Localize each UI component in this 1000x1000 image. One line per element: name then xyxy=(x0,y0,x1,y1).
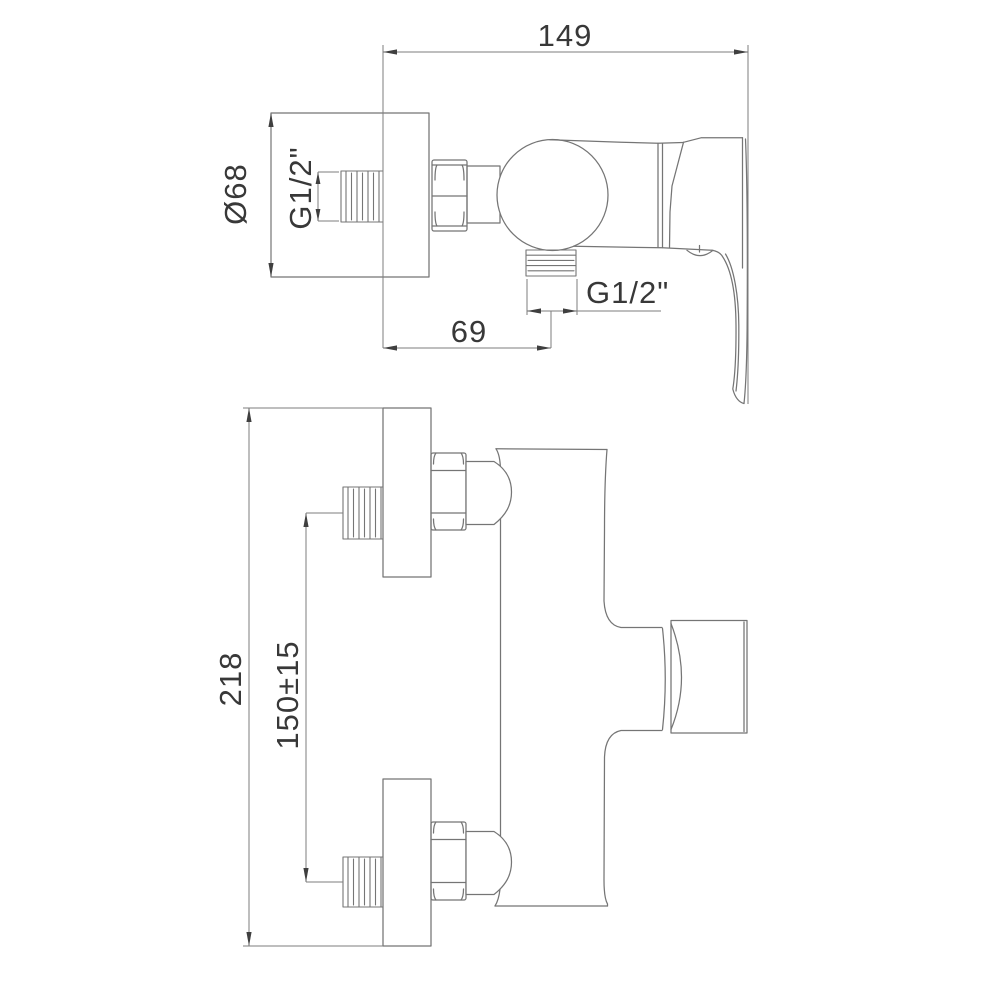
top-connection xyxy=(343,408,512,577)
inlet-thread-bottom xyxy=(343,857,383,907)
dimension-plate-diameter: Ø68 xyxy=(218,113,274,277)
technical-drawing-page: 149 Ø68 G1/2" G1/2" 69 xyxy=(0,0,1000,1000)
body-plan xyxy=(495,449,665,906)
dim-overall-depth-label: 149 xyxy=(538,18,593,53)
inlet-thread-top xyxy=(343,487,383,539)
connector-cylinder-side xyxy=(467,166,500,223)
valve-body-circle xyxy=(497,140,608,251)
dim-connection-spacing-label: 150±15 xyxy=(270,640,305,749)
dimension-connection-spacing: 150±15 xyxy=(270,513,343,882)
side-view: 149 Ø68 G1/2" G1/2" 69 xyxy=(218,18,748,404)
dimension-wall-to-outlet: 69 xyxy=(383,311,551,351)
dim-overall-width-label: 218 xyxy=(213,652,248,707)
outlet-thread xyxy=(526,250,576,276)
hex-nut-bottom xyxy=(431,822,466,900)
dimension-outlet-thread: G1/2" xyxy=(527,275,669,315)
hex-nut-top xyxy=(431,453,466,530)
connector-cap-top xyxy=(466,462,512,525)
dimension-inlet-thread: G1/2" xyxy=(283,146,339,229)
inlet-thread xyxy=(341,171,383,222)
hex-nut-side xyxy=(432,160,467,231)
bottom-connection xyxy=(343,779,512,946)
handle-cap-plan xyxy=(671,621,747,734)
dim-inlet-thread-label: G1/2" xyxy=(283,146,318,229)
wall-plate-bottom xyxy=(383,779,431,946)
dim-outlet-thread-label: G1/2" xyxy=(586,275,669,310)
plan-view: 218 150±15 xyxy=(213,408,747,946)
cartridge-dome-side xyxy=(670,142,684,247)
connector-cap-bottom xyxy=(466,832,512,895)
dim-plate-diameter-label: Ø68 xyxy=(218,163,253,225)
shower-mixer-technical-drawing: 149 Ø68 G1/2" G1/2" 69 xyxy=(0,0,1000,1000)
wall-plate-top xyxy=(383,408,431,577)
dim-wall-to-outlet-label: 69 xyxy=(451,314,487,349)
